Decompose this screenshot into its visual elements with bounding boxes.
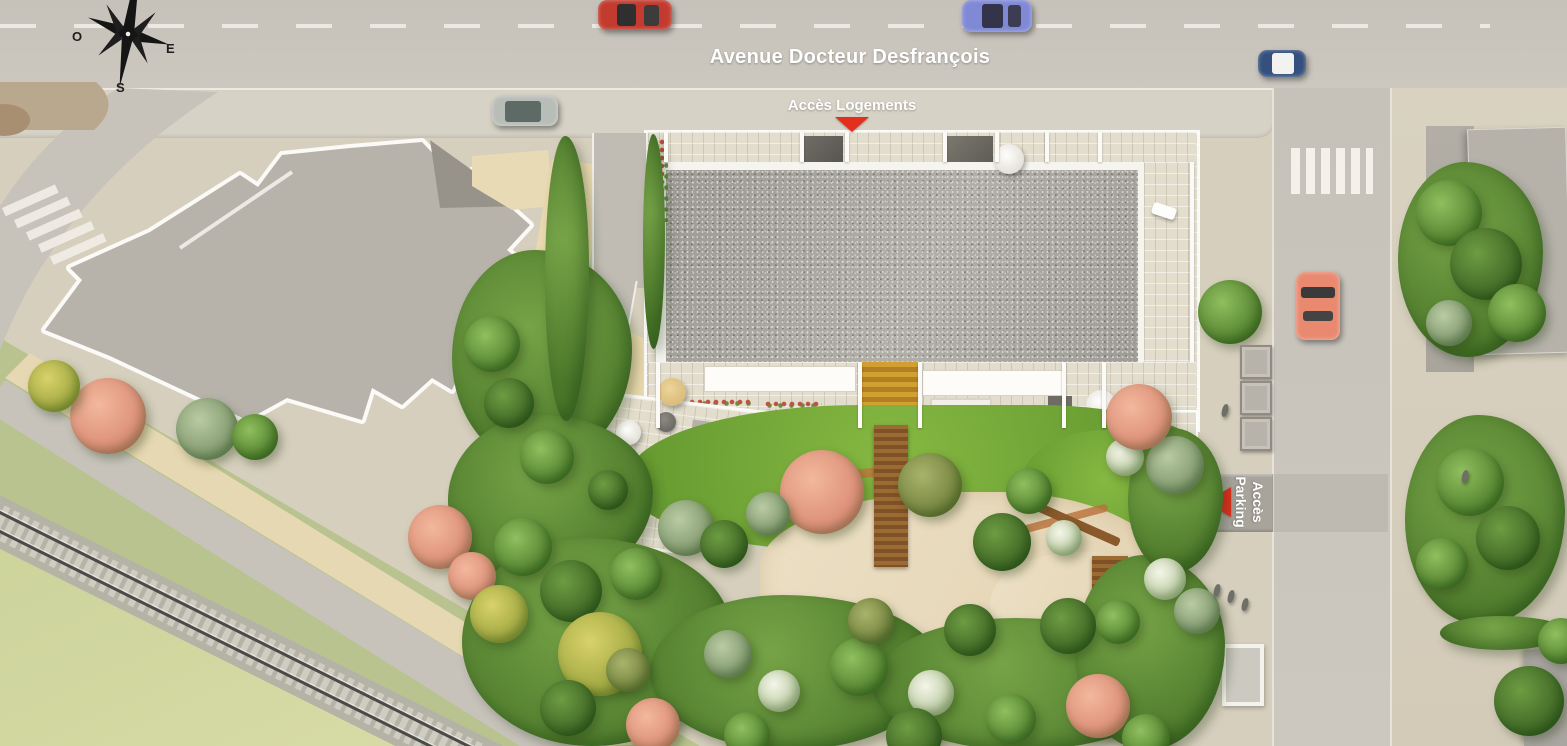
tree	[1494, 666, 1564, 736]
crosswalk-north	[1291, 148, 1373, 194]
planter-south-b	[922, 370, 1064, 396]
tree	[626, 698, 680, 746]
street-planter	[1240, 417, 1272, 451]
car-orange	[1296, 272, 1340, 340]
windshield	[617, 4, 636, 27]
tree	[1488, 284, 1546, 342]
tree	[1144, 558, 1186, 600]
tree	[540, 680, 596, 736]
tree	[1106, 384, 1172, 450]
tree	[1416, 538, 1468, 590]
tree	[1006, 468, 1052, 514]
tree	[610, 548, 662, 600]
avenue-center-dashes	[0, 24, 1490, 28]
tree	[944, 604, 996, 656]
tree	[28, 360, 80, 412]
compass-south-label: S	[116, 80, 125, 95]
rear-window	[1008, 5, 1021, 27]
tree	[464, 316, 520, 372]
terrace-wall	[1098, 132, 1102, 162]
tree	[1426, 300, 1472, 346]
access-parking-line1: Accès	[1249, 447, 1266, 557]
rear-window	[1303, 311, 1334, 321]
terrace-wall-east	[1190, 162, 1194, 370]
pedestrian	[1226, 589, 1235, 603]
tree	[1476, 506, 1540, 570]
van-windows	[505, 101, 541, 122]
terrace-wall	[1045, 132, 1049, 162]
tree	[1436, 448, 1504, 516]
car-periwinkle	[962, 0, 1032, 32]
white-roof	[1272, 53, 1294, 75]
terrace-wall	[943, 132, 947, 162]
windshield	[1301, 287, 1334, 298]
car-red	[598, 0, 672, 30]
terrace-wall	[995, 132, 999, 162]
site-plan: O E S Avenue Docteur Desfrançois Accès L…	[0, 0, 1567, 746]
pedestrian	[1212, 583, 1221, 597]
tree	[704, 630, 752, 678]
compass-east-label: E	[166, 41, 175, 56]
tree	[232, 414, 278, 460]
compass-west-label: O	[72, 29, 82, 44]
bus-shelter	[1222, 644, 1264, 706]
terrace-wall	[1062, 362, 1066, 428]
parasol-tan	[658, 378, 686, 406]
tree	[606, 648, 650, 692]
tree	[746, 492, 790, 536]
pedestrian	[1240, 597, 1249, 611]
tree	[1040, 598, 1096, 654]
car-navy	[1258, 50, 1306, 77]
tree	[830, 638, 888, 696]
tree	[520, 430, 574, 484]
tree	[898, 453, 962, 517]
pedestrian	[1220, 403, 1229, 417]
terrace-wall	[918, 362, 922, 428]
tree	[758, 670, 800, 712]
east-terraces	[1144, 162, 1194, 370]
street-name-label: Avenue Docteur Desfrançois	[650, 46, 1050, 69]
tree	[470, 585, 528, 643]
terrace-wall	[656, 362, 660, 428]
main-roof-gravel	[666, 170, 1138, 362]
windshield	[982, 4, 1003, 28]
tree	[1198, 280, 1262, 344]
tree	[848, 598, 894, 644]
street-planter	[1240, 381, 1272, 415]
tree	[986, 694, 1036, 744]
street-planter	[1240, 345, 1272, 379]
terrace-wall	[845, 132, 849, 162]
north-terraces	[648, 132, 1196, 162]
terrace-wall	[1102, 362, 1106, 428]
terrace-wall	[858, 362, 862, 428]
terrace-wall	[664, 132, 668, 162]
tree	[70, 378, 146, 454]
access-housing-label: Accès Logements	[752, 97, 952, 114]
tree	[1046, 520, 1082, 556]
parking-driveway-road-shade	[1272, 474, 1388, 532]
tree	[1096, 600, 1140, 644]
planter-south-a	[704, 366, 856, 392]
tree	[700, 520, 748, 568]
access-parking-line2: Parking	[1232, 447, 1249, 557]
alley-upper	[592, 133, 648, 288]
access-parking-label: Accès Parking	[1230, 447, 1266, 557]
entrance-hall-b	[947, 136, 993, 162]
van-silver	[492, 96, 558, 126]
tree	[588, 470, 628, 510]
tree	[494, 518, 552, 576]
tree	[780, 450, 864, 534]
terrace-wall	[800, 132, 804, 162]
tree	[176, 398, 238, 460]
rear-window	[644, 5, 659, 26]
tree	[484, 378, 534, 428]
tree	[973, 513, 1031, 571]
access-housing-arrow	[835, 117, 869, 132]
tree	[1066, 674, 1130, 738]
entrance-hall-a	[802, 136, 843, 162]
